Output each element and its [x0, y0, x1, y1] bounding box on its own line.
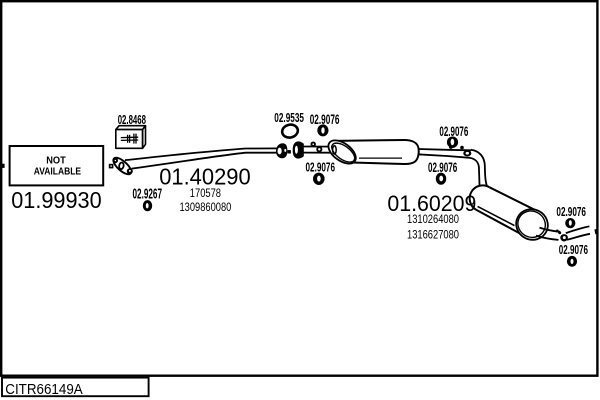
svg-text:02.9076: 02.9076 [428, 159, 457, 175]
svg-text:02.9535: 02.9535 [274, 110, 304, 125]
svg-text:02.9267: 02.9267 [133, 186, 163, 202]
svg-text:170578: 170578 [190, 186, 221, 200]
svg-text:NOT: NOT [46, 156, 66, 167]
svg-text:01.99930: 01.99930 [11, 187, 102, 213]
svg-text:CITR66149A: CITR66149A [5, 381, 83, 398]
svg-text:1316627080: 1316627080 [407, 228, 459, 242]
svg-text:02.9076: 02.9076 [556, 204, 586, 219]
svg-text:02.9076: 02.9076 [306, 160, 336, 175]
svg-text:1309860080: 1309860080 [180, 200, 232, 214]
svg-text:1310264080: 1310264080 [407, 212, 459, 226]
svg-text:02.9076: 02.9076 [559, 242, 588, 257]
svg-text:AVAILABLE: AVAILABLE [34, 166, 82, 177]
